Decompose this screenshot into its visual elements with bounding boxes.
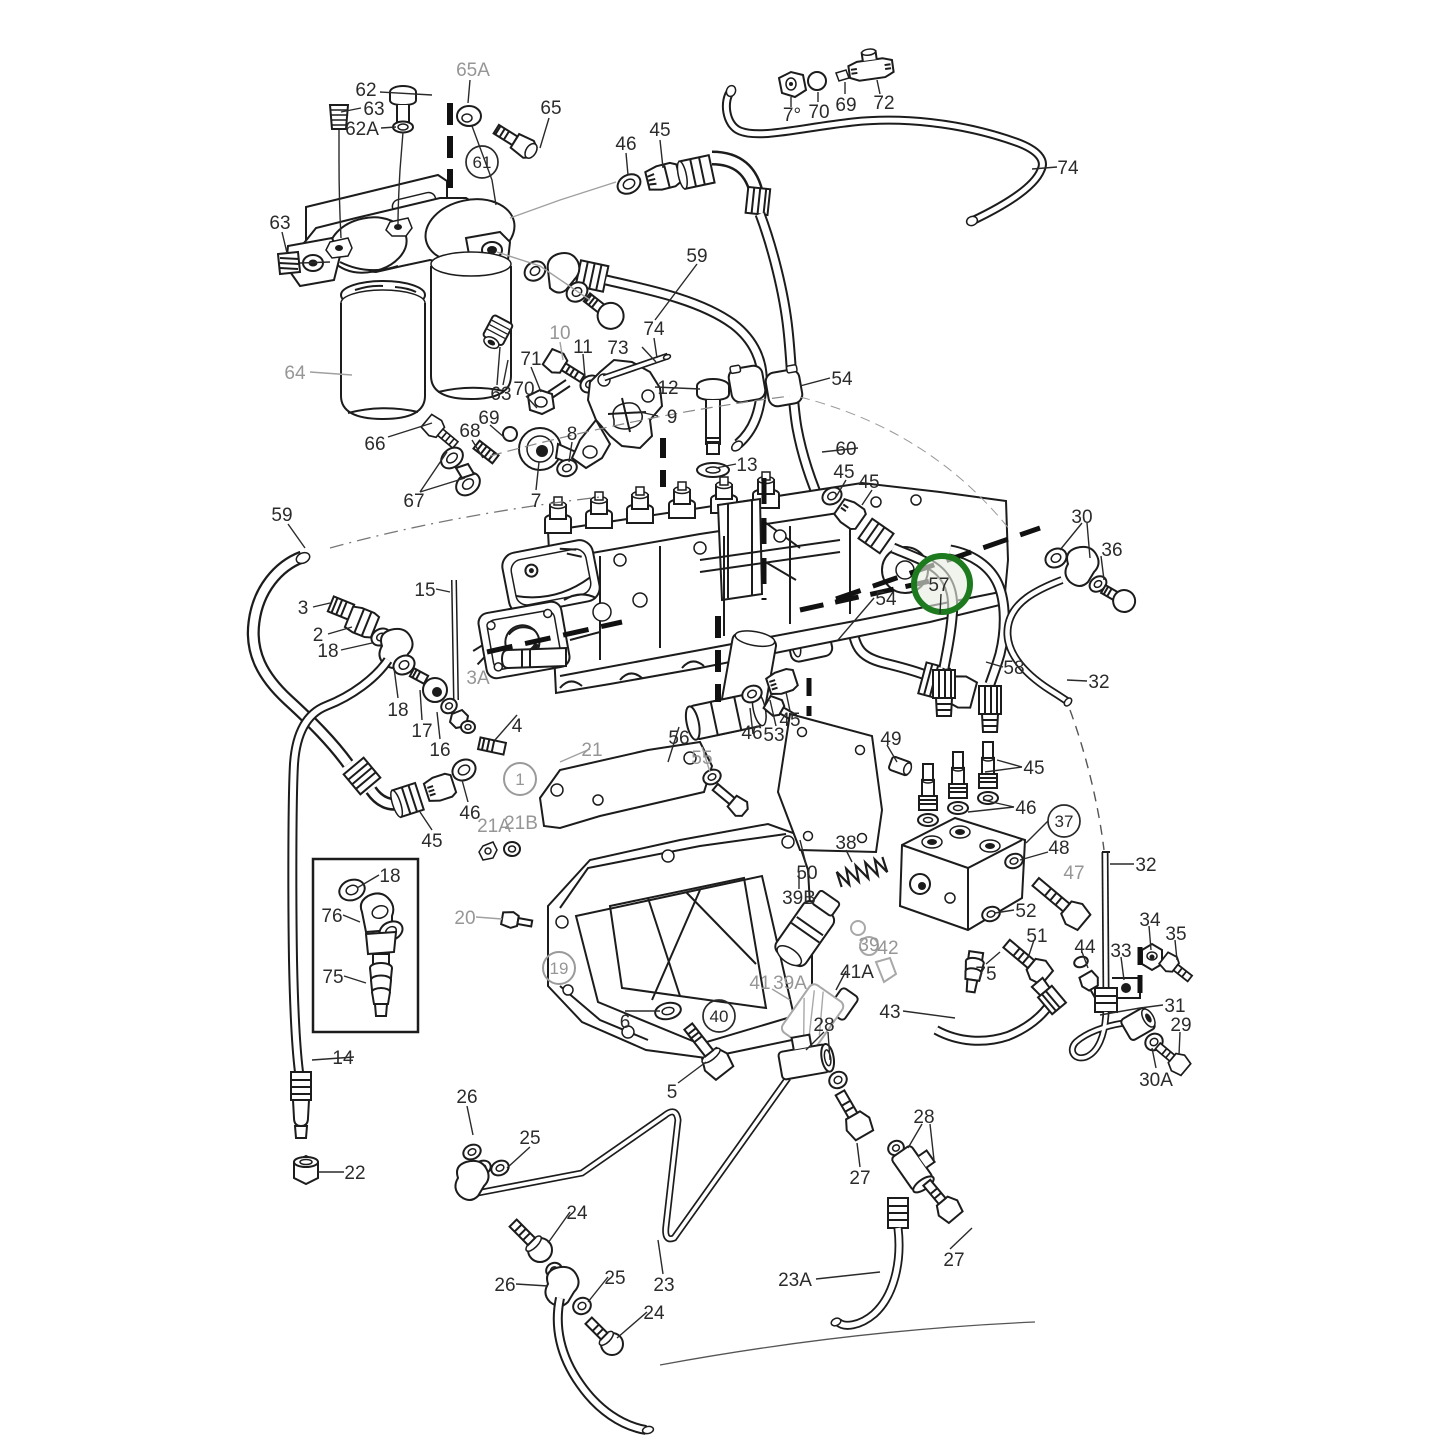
- svg-text:45: 45: [649, 120, 670, 141]
- svg-text:33: 33: [1110, 941, 1131, 962]
- svg-text:75: 75: [975, 964, 996, 985]
- svg-text:1: 1: [515, 770, 524, 789]
- svg-text:46: 46: [615, 134, 636, 155]
- svg-text:63: 63: [269, 213, 290, 234]
- svg-text:28: 28: [813, 1015, 834, 1036]
- svg-text:10: 10: [549, 323, 570, 344]
- svg-text:23: 23: [653, 1275, 674, 1296]
- svg-text:52: 52: [1015, 901, 1036, 922]
- svg-text:18: 18: [379, 866, 400, 887]
- svg-text:8: 8: [567, 424, 578, 445]
- svg-text:35: 35: [1165, 924, 1186, 945]
- svg-text:7°: 7°: [783, 105, 801, 126]
- svg-text:72: 72: [873, 93, 894, 114]
- svg-text:21B: 21B: [504, 813, 538, 834]
- svg-text:45: 45: [1023, 758, 1044, 779]
- svg-text:76: 76: [321, 906, 342, 927]
- svg-text:43: 43: [879, 1002, 900, 1023]
- svg-text:26: 26: [456, 1087, 477, 1108]
- svg-text:24: 24: [643, 1303, 665, 1324]
- svg-text:22: 22: [344, 1163, 365, 1184]
- svg-text:32: 32: [1088, 672, 1109, 693]
- svg-text:74: 74: [643, 319, 665, 340]
- svg-text:66: 66: [364, 434, 385, 455]
- svg-text:59: 59: [686, 246, 707, 267]
- svg-text:12: 12: [657, 378, 678, 399]
- svg-text:26: 26: [494, 1275, 515, 1296]
- svg-text:71: 71: [520, 349, 541, 370]
- svg-text:9: 9: [667, 407, 678, 428]
- svg-text:37: 37: [1055, 812, 1074, 831]
- svg-text:23A: 23A: [778, 1270, 812, 1291]
- svg-text:55: 55: [691, 748, 712, 769]
- svg-text:28: 28: [913, 1107, 934, 1128]
- svg-text:41: 41: [749, 973, 770, 994]
- svg-text:20: 20: [454, 908, 475, 929]
- svg-text:70: 70: [513, 379, 534, 400]
- svg-text:17: 17: [411, 721, 432, 742]
- svg-text:32: 32: [1135, 855, 1156, 876]
- svg-text:54: 54: [831, 369, 853, 390]
- svg-text:25: 25: [519, 1128, 540, 1149]
- svg-text:18: 18: [387, 700, 408, 721]
- svg-text:41A: 41A: [840, 962, 874, 983]
- svg-text:7: 7: [531, 491, 542, 512]
- svg-text:70: 70: [808, 102, 829, 123]
- svg-text:39B: 39B: [782, 888, 816, 909]
- svg-text:64: 64: [284, 363, 306, 384]
- svg-text:65A: 65A: [456, 60, 490, 81]
- svg-text:75: 75: [322, 967, 343, 988]
- svg-text:6: 6: [620, 1012, 631, 1033]
- svg-text:45: 45: [858, 472, 879, 493]
- svg-text:63: 63: [363, 99, 384, 120]
- svg-text:3A: 3A: [466, 668, 490, 689]
- svg-text:25: 25: [604, 1268, 625, 1289]
- svg-text:36: 36: [1101, 540, 1122, 561]
- svg-text:46: 46: [1015, 798, 1036, 819]
- svg-text:45: 45: [421, 831, 442, 852]
- svg-text:30A: 30A: [1139, 1070, 1173, 1091]
- svg-text:62: 62: [355, 80, 376, 101]
- svg-text:44: 44: [1074, 937, 1096, 958]
- svg-text:62A: 62A: [345, 119, 379, 140]
- svg-text:39A: 39A: [773, 973, 807, 994]
- svg-text:60: 60: [835, 439, 856, 460]
- svg-text:3: 3: [298, 598, 309, 619]
- svg-text:48: 48: [1048, 838, 1069, 859]
- svg-text:50: 50: [796, 863, 817, 884]
- svg-text:58: 58: [1003, 658, 1024, 679]
- svg-text:68: 68: [459, 421, 480, 442]
- svg-text:24: 24: [566, 1203, 588, 1224]
- svg-text:21: 21: [581, 740, 602, 761]
- svg-text:5: 5: [667, 1082, 678, 1103]
- svg-text:69: 69: [835, 95, 856, 116]
- svg-text:38: 38: [835, 833, 856, 854]
- svg-text:69: 69: [478, 408, 499, 429]
- svg-text:56: 56: [668, 728, 689, 749]
- svg-text:29: 29: [1170, 1015, 1191, 1036]
- svg-text:15: 15: [414, 580, 435, 601]
- svg-text:34: 34: [1139, 910, 1161, 931]
- svg-text:45: 45: [833, 462, 854, 483]
- svg-text:39: 39: [858, 935, 879, 956]
- svg-text:40: 40: [710, 1007, 729, 1026]
- svg-text:46: 46: [741, 723, 762, 744]
- svg-text:30: 30: [1071, 507, 1092, 528]
- svg-text:13: 13: [736, 455, 757, 476]
- svg-text:63: 63: [490, 384, 511, 405]
- svg-text:31: 31: [1164, 996, 1185, 1017]
- svg-text:27: 27: [943, 1250, 964, 1271]
- svg-text:19: 19: [550, 959, 569, 978]
- svg-text:27: 27: [849, 1168, 870, 1189]
- svg-text:74: 74: [1057, 158, 1079, 179]
- svg-text:45: 45: [779, 710, 800, 731]
- svg-text:47: 47: [1063, 863, 1084, 884]
- svg-text:61: 61: [473, 153, 492, 172]
- svg-text:4: 4: [512, 716, 523, 737]
- svg-text:11: 11: [573, 337, 593, 358]
- svg-text:65: 65: [540, 98, 561, 119]
- svg-text:67: 67: [403, 491, 424, 512]
- svg-text:16: 16: [429, 740, 450, 761]
- svg-text:51: 51: [1026, 926, 1047, 947]
- svg-text:57: 57: [928, 575, 949, 596]
- svg-text:14: 14: [332, 1048, 354, 1069]
- svg-text:54: 54: [875, 589, 897, 610]
- svg-text:42: 42: [877, 938, 898, 959]
- svg-text:18: 18: [317, 641, 338, 662]
- svg-text:73: 73: [607, 338, 628, 359]
- svg-text:59: 59: [271, 505, 292, 526]
- svg-text:49: 49: [880, 729, 901, 750]
